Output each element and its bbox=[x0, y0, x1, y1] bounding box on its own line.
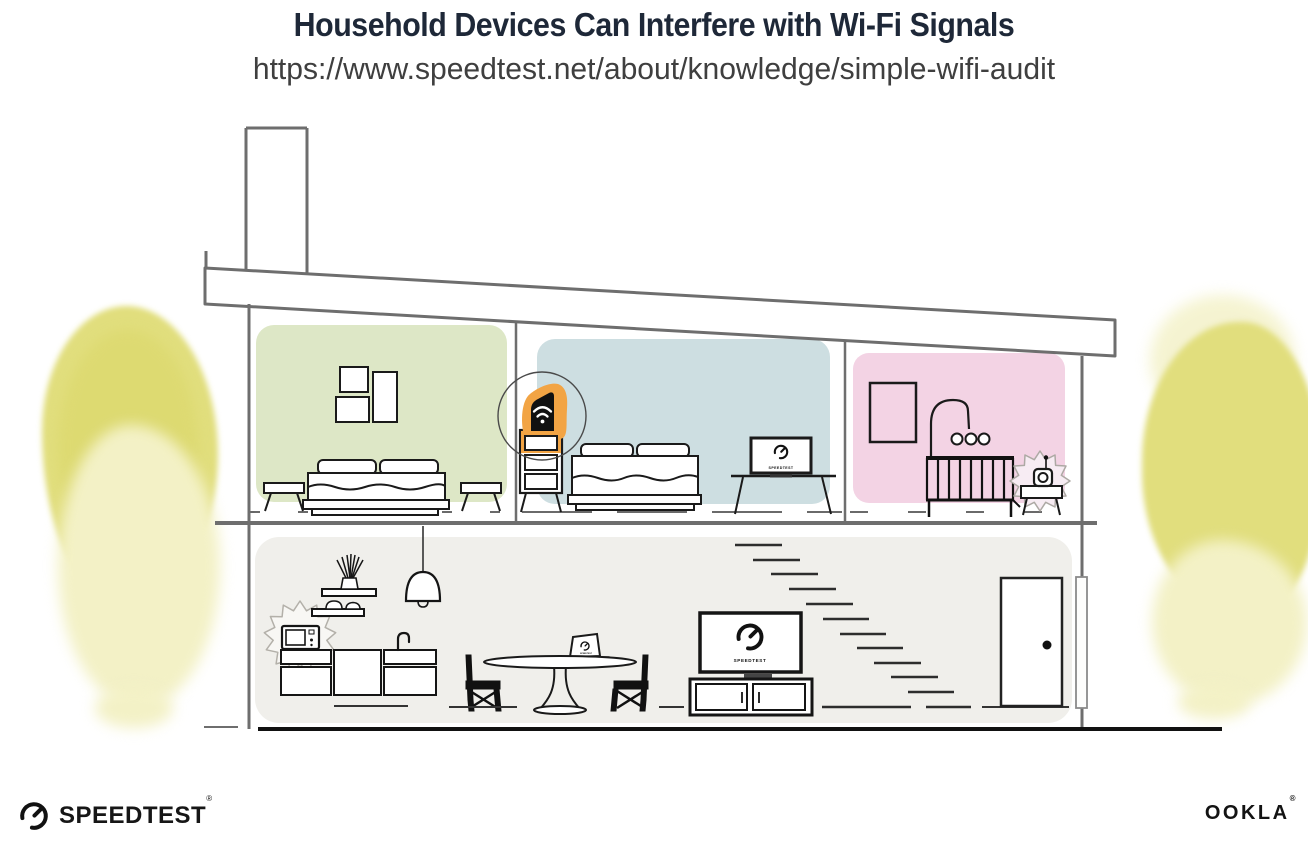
desktop-monitor: SPEEDTEST bbox=[751, 438, 811, 478]
tv-screen bbox=[700, 613, 801, 672]
double-bed bbox=[303, 460, 449, 515]
bowl bbox=[346, 603, 360, 610]
plant-pot bbox=[341, 578, 358, 589]
source-url: https://www.speedtest.net/about/knowledg… bbox=[20, 51, 1289, 87]
registered-mark: ® bbox=[1290, 794, 1298, 803]
house-illustration: SPEEDTEST bbox=[0, 0, 1308, 861]
speedtest-gauge-logo-icon bbox=[18, 800, 52, 832]
media-console bbox=[690, 679, 812, 715]
kitchen-cabinets bbox=[281, 650, 436, 695]
infographic-canvas: Household Devices Can Interfere with Wi-… bbox=[0, 0, 1308, 861]
tv-area: SPEEDTEST bbox=[690, 613, 812, 715]
door bbox=[1001, 578, 1062, 706]
page-title: Household Devices Can Interfere with Wi-… bbox=[52, 6, 1255, 44]
downspout bbox=[1076, 577, 1087, 708]
microwave bbox=[282, 626, 319, 649]
speedtest-logo: SPEEDTEST® bbox=[18, 800, 212, 832]
speedtest-wordmark: SPEEDTEST bbox=[59, 802, 206, 829]
tv-brand-text: SPEEDTEST bbox=[734, 658, 767, 663]
ookla-wordmark: OOKLA bbox=[1205, 802, 1290, 824]
monitor-brand-text: SPEEDTEST bbox=[769, 466, 794, 470]
dresser-drawers bbox=[525, 436, 557, 489]
door-knob bbox=[1043, 641, 1052, 650]
tv-stand bbox=[744, 674, 772, 678]
laptop-brand-text: SPEEDTEST bbox=[580, 653, 593, 655]
registered-mark: ® bbox=[206, 794, 212, 803]
header: Household Devices Can Interfere with Wi-… bbox=[0, 6, 1308, 87]
bowl bbox=[326, 601, 342, 609]
chimney bbox=[246, 128, 307, 276]
ookla-logo: OOKLA® bbox=[1205, 802, 1298, 825]
